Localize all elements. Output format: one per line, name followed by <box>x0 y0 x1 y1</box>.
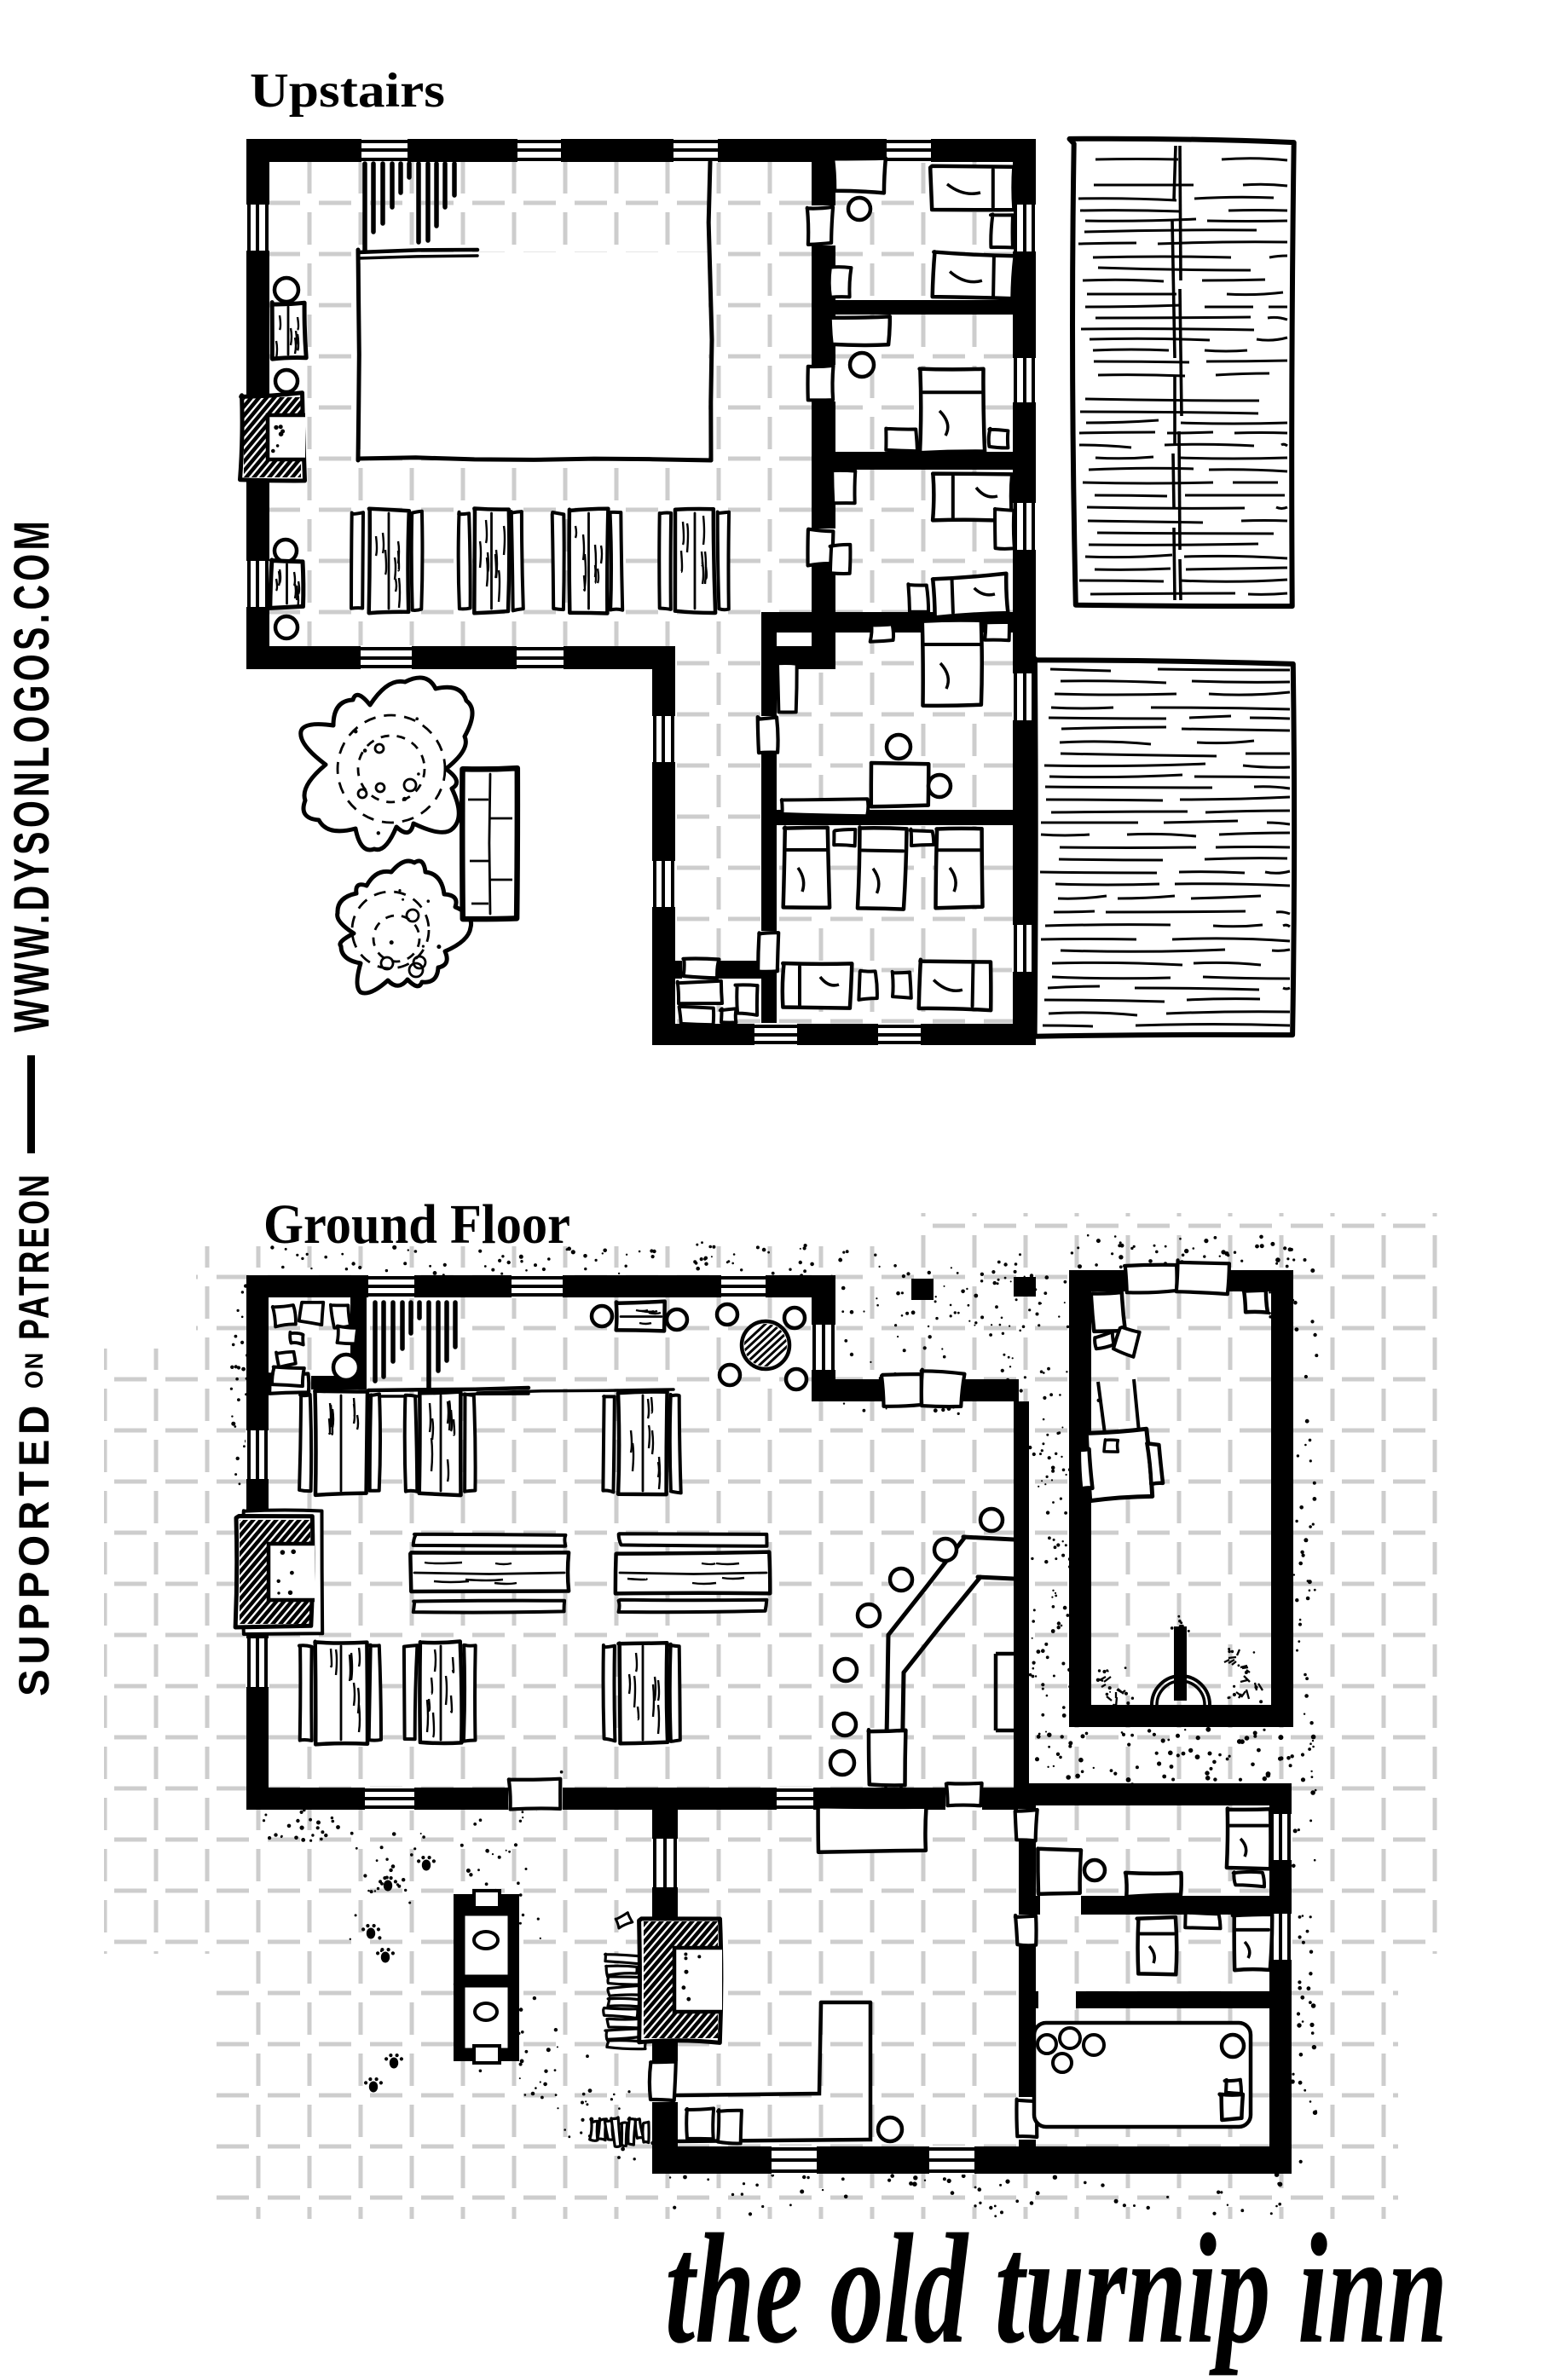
svg-text:WWW.DYSONLOGOS.COM: WWW.DYSONLOGOS.COM <box>4 517 60 1032</box>
svg-text:Upstairs: Upstairs <box>250 64 445 118</box>
svg-text:SUPPORTED: SUPPORTED <box>10 1401 58 1696</box>
svg-text:PATREON: PATREON <box>10 1172 58 1340</box>
svg-text:ON: ON <box>20 1351 49 1389</box>
svg-text:the old turnip inn: the old turnip inn <box>665 2202 1448 2377</box>
svg-text:Ground Floor: Ground Floor <box>263 1193 570 1256</box>
